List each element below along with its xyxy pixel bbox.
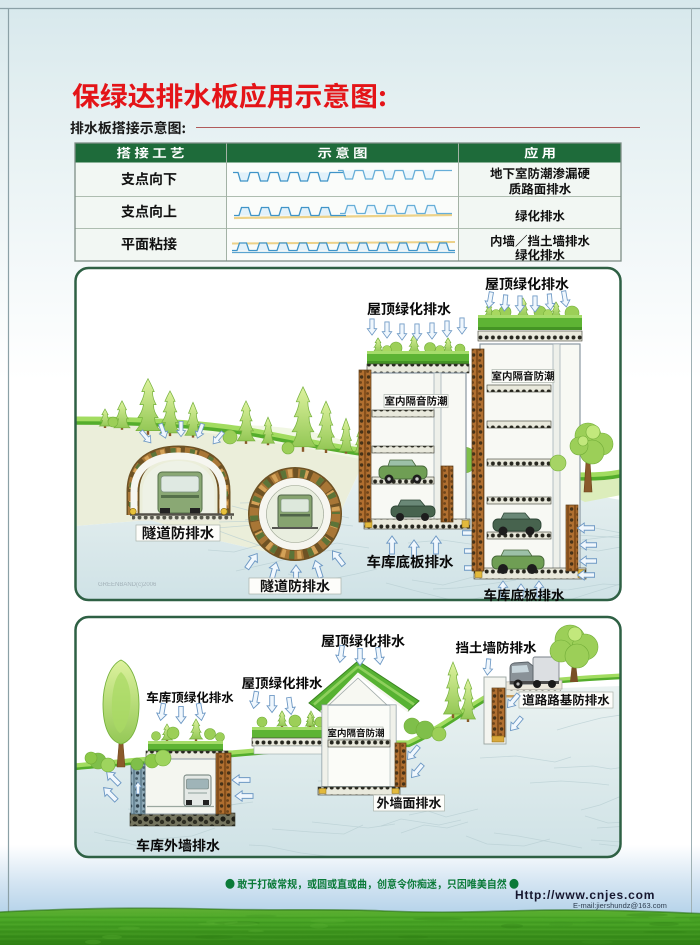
svg-text:E-mail:jiershundz@163.com: E-mail:jiershundz@163.com <box>573 901 667 910</box>
svg-text:Http://www.cnjes.com: Http://www.cnjes.com <box>515 888 655 902</box>
svg-text:GREENBAND(c)2006: GREENBAND(c)2006 <box>98 582 157 588</box>
